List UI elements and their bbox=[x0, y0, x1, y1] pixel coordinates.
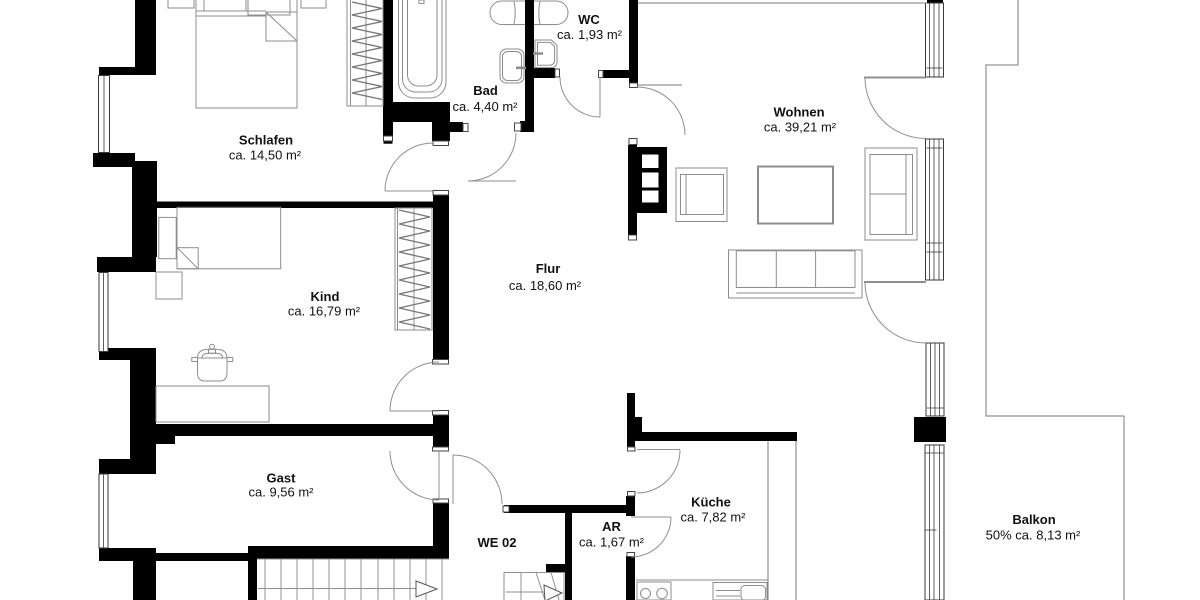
svg-text:Flur: Flur bbox=[536, 261, 561, 276]
svg-text:ca. 7,82 m²: ca. 7,82 m² bbox=[680, 510, 746, 525]
svg-text:AR: AR bbox=[602, 519, 621, 534]
svg-text:ca. 1,93 m²: ca. 1,93 m² bbox=[557, 27, 623, 42]
svg-text:Küche: Küche bbox=[691, 495, 731, 510]
svg-text:WC: WC bbox=[578, 12, 600, 27]
svg-text:Schlafen: Schlafen bbox=[239, 133, 293, 148]
svg-text:Balkon: Balkon bbox=[1012, 512, 1055, 527]
svg-text:ca. 18,60 m²: ca. 18,60 m² bbox=[509, 278, 582, 293]
svg-text:Wohnen: Wohnen bbox=[773, 105, 824, 120]
svg-text:Gast: Gast bbox=[267, 471, 297, 486]
svg-text:Bad: Bad bbox=[473, 83, 498, 98]
svg-text:ca. 16,79 m²: ca. 16,79 m² bbox=[288, 304, 361, 319]
svg-text:ca. 9,56 m²: ca. 9,56 m² bbox=[248, 485, 314, 500]
svg-text:50% ca. 8,13 m²: 50% ca. 8,13 m² bbox=[986, 528, 1081, 543]
svg-text:Kind: Kind bbox=[311, 289, 340, 304]
svg-text:ca. 14,50 m²: ca. 14,50 m² bbox=[229, 148, 302, 163]
svg-text:ca. 1,67 m²: ca. 1,67 m² bbox=[579, 535, 645, 550]
svg-text:ca. 39,21 m²: ca. 39,21 m² bbox=[764, 120, 837, 135]
svg-text:WE 02: WE 02 bbox=[477, 535, 516, 550]
svg-text:ca. 4,40 m²: ca. 4,40 m² bbox=[452, 99, 518, 114]
